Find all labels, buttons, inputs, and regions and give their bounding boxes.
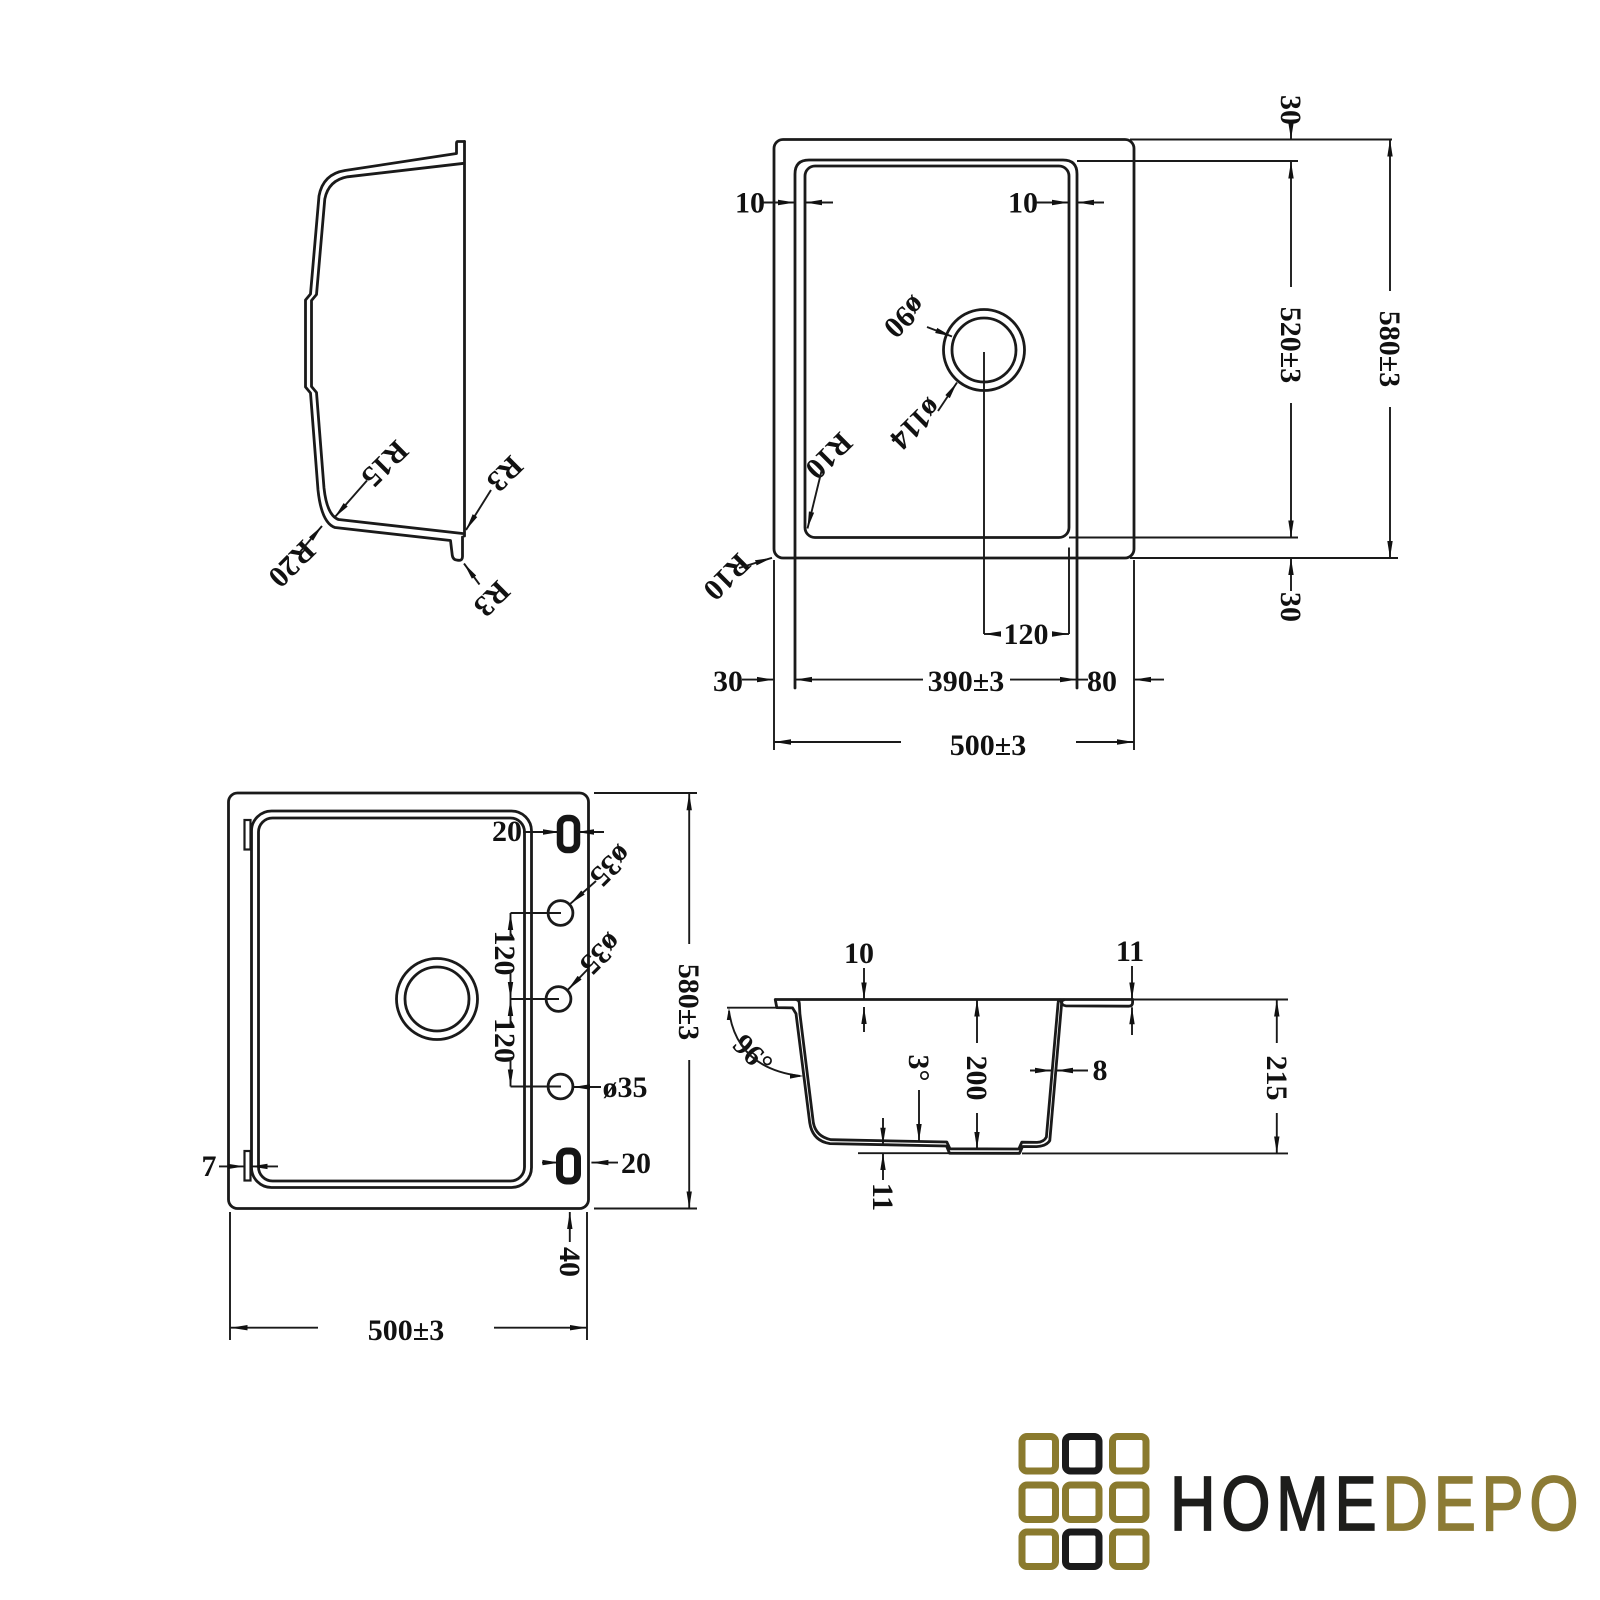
- svg-text:215: 215: [1260, 1056, 1293, 1101]
- svg-text:200: 200: [960, 1056, 993, 1101]
- svg-text:10: 10: [735, 187, 765, 220]
- svg-text:520±3: 520±3: [1274, 307, 1307, 383]
- svg-text:120: 120: [488, 931, 521, 976]
- svg-text:3°: 3°: [902, 1055, 935, 1082]
- svg-text:30: 30: [1274, 95, 1307, 125]
- svg-text:40: 40: [553, 1247, 586, 1277]
- svg-text:8: 8: [1093, 1054, 1108, 1087]
- svg-text:ø35: ø35: [603, 1071, 648, 1104]
- svg-text:580±3: 580±3: [672, 964, 705, 1040]
- svg-text:20: 20: [621, 1147, 651, 1180]
- svg-text:7: 7: [202, 1150, 217, 1183]
- svg-text:10: 10: [844, 937, 874, 970]
- svg-text:HOMEDEPO: HOMEDEPO: [1170, 1460, 1584, 1546]
- svg-text:20: 20: [492, 815, 522, 848]
- svg-text:390±3: 390±3: [928, 665, 1004, 698]
- svg-text:580±3: 580±3: [1373, 311, 1406, 387]
- svg-text:80: 80: [1087, 665, 1117, 698]
- svg-text:11: 11: [866, 1183, 899, 1211]
- svg-text:120: 120: [1004, 618, 1049, 651]
- svg-text:10: 10: [1008, 187, 1038, 220]
- svg-text:30: 30: [713, 665, 743, 698]
- svg-text:120: 120: [488, 1018, 521, 1063]
- svg-text:500±3: 500±3: [368, 1314, 444, 1347]
- svg-text:500±3: 500±3: [950, 729, 1026, 762]
- svg-text:11: 11: [1116, 935, 1144, 968]
- svg-text:30: 30: [1274, 592, 1307, 622]
